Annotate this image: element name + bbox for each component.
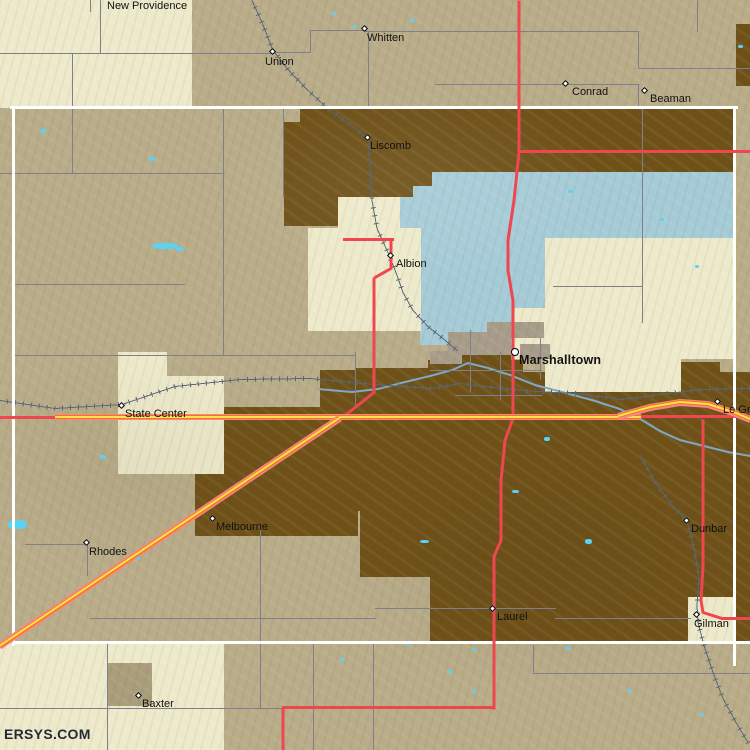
map-canvas[interactable]: New ProvidenceWhittenUnionConradBeamanLi… xyxy=(0,0,750,750)
hillshade-texture xyxy=(0,0,750,750)
watermark: ERSYS.COM xyxy=(4,726,91,742)
